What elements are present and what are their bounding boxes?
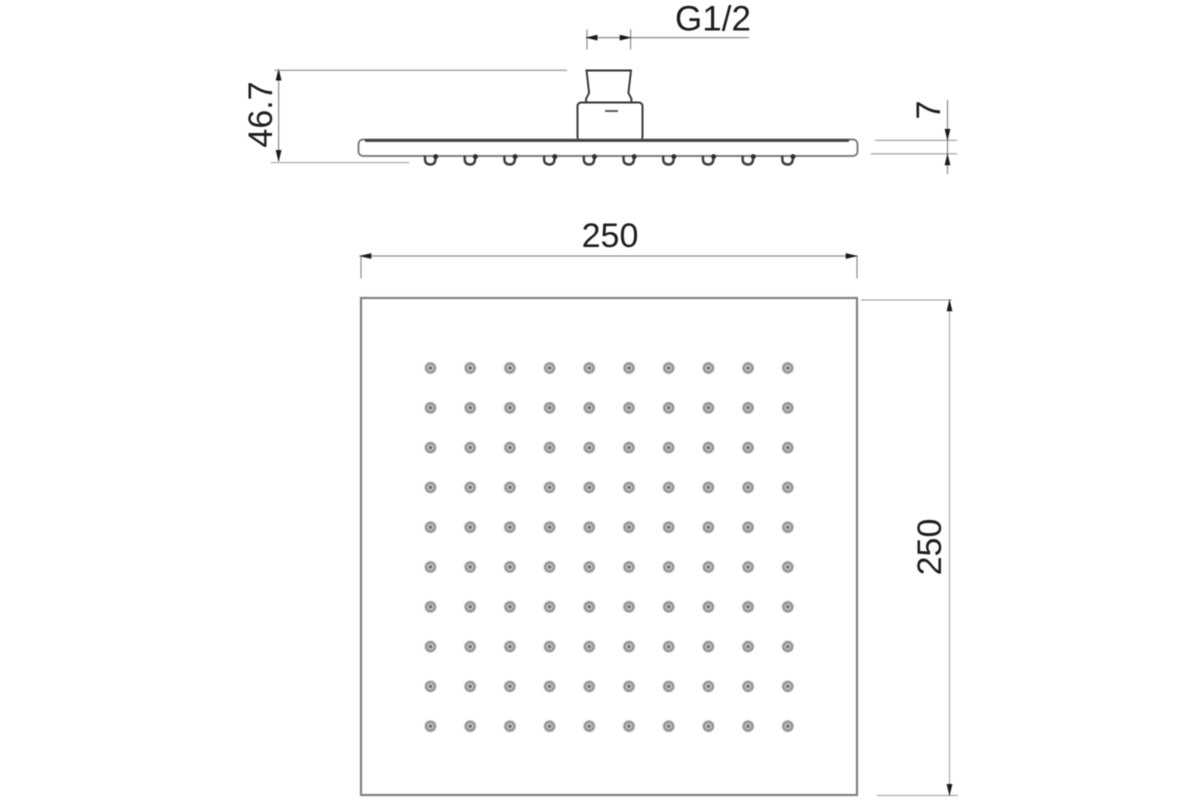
svg-text:7: 7	[910, 101, 948, 120]
svg-text:46.7: 46.7	[242, 81, 280, 147]
svg-text:250: 250	[911, 519, 949, 576]
svg-text:250: 250	[582, 217, 639, 255]
svg-text:G1/2: G1/2	[675, 0, 751, 39]
